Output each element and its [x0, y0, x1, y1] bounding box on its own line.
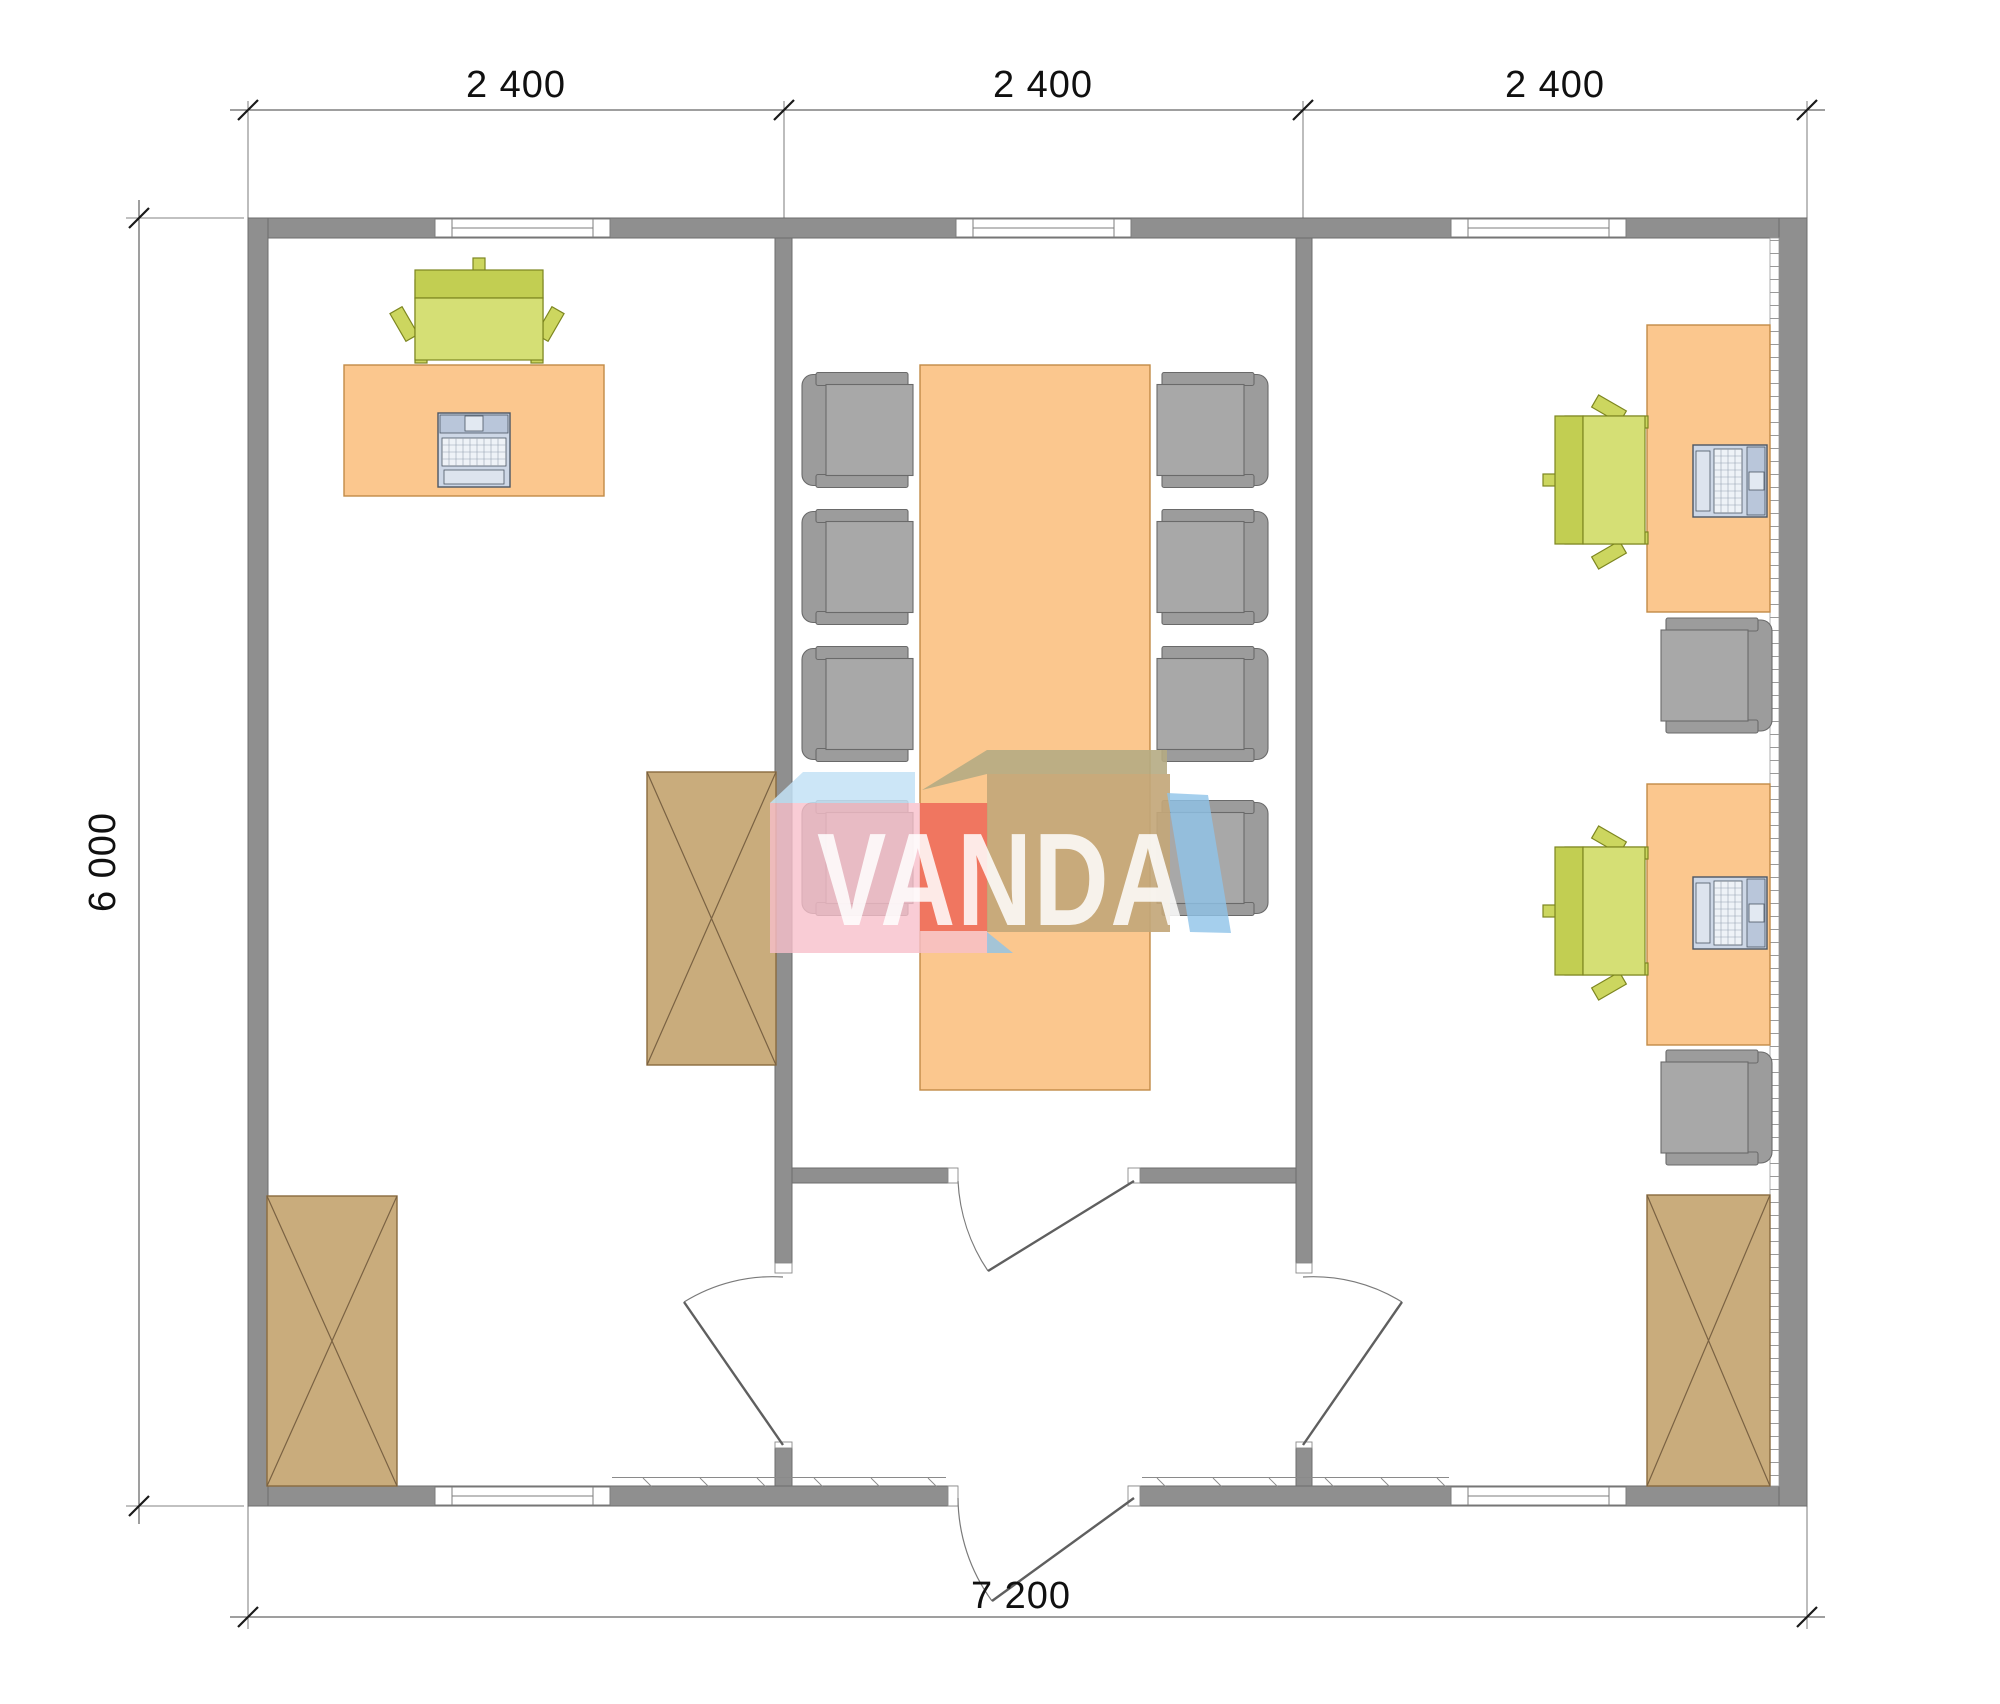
laptop-office-left [438, 413, 510, 487]
laptop-right-bottom [1693, 877, 1767, 949]
conference-chair-right-2 [1157, 510, 1268, 625]
task-chair-right-top [1543, 395, 1648, 569]
dim-label-bay-2: 2 400 [993, 64, 1093, 106]
window-top-right [1451, 219, 1626, 237]
vanda-watermark: VANDA [770, 750, 1231, 953]
visitor-chair-right-2 [1661, 1050, 1772, 1165]
partition-left [775, 238, 792, 1263]
visitor-chair-right-1 [1661, 618, 1772, 733]
wall-ladder-strip [1770, 238, 1779, 1486]
window-top-middle [956, 219, 1131, 237]
conference-chair-left-1 [802, 373, 913, 488]
dimension-top: 2 400 2 400 2 400 [230, 64, 1825, 218]
lobby-wall-right-segment [1140, 1168, 1296, 1183]
wall-right [1779, 218, 1807, 1506]
task-chair-right-bottom [1543, 826, 1648, 1000]
conference-chair-right-3 [1157, 647, 1268, 762]
window-top-left [435, 219, 610, 237]
conference-chair-left-3 [802, 647, 913, 762]
office-right [1543, 325, 1772, 1486]
dimension-bottom: 7 200 [230, 1506, 1825, 1629]
vanda-watermark-text: VANDA [817, 806, 1187, 953]
dim-label-width: 7 200 [971, 1575, 1071, 1617]
door-office-left [684, 1277, 783, 1445]
floor-plan: 2 400 2 400 2 400 6 000 7 200 VANDA [0, 0, 2000, 1704]
partition-right [1296, 238, 1312, 1263]
door-jambs [775, 1168, 1312, 1448]
partition-left-stub [775, 1448, 792, 1486]
door-meeting-room [958, 1181, 1134, 1271]
door-office-right [1303, 1277, 1402, 1445]
floor-plan-svg: 2 400 2 400 2 400 6 000 7 200 VANDA [0, 0, 2000, 1704]
laptop-right-top [1693, 445, 1767, 517]
dim-label-depth: 6 000 [82, 812, 124, 912]
partition-right-stub [1296, 1448, 1312, 1486]
entrance-opening [948, 1485, 1140, 1507]
dimension-left: 6 000 [82, 200, 244, 1524]
conference-table [920, 365, 1150, 1090]
window-bottom-right [1451, 1487, 1626, 1505]
cabinet-bottom-right [1647, 1195, 1770, 1486]
wardrobe-office-left [647, 772, 776, 1065]
dim-label-bay-1: 2 400 [466, 64, 566, 106]
conference-chair-right-1 [1157, 373, 1268, 488]
task-chair-office-left [390, 258, 564, 363]
dim-label-bay-3: 2 400 [1505, 64, 1605, 106]
wall-left [248, 218, 268, 1506]
meeting-room [802, 365, 1268, 1090]
window-bottom-left [435, 1487, 610, 1505]
office-left [267, 258, 776, 1486]
lobby-wall-left-segment [792, 1168, 948, 1183]
conference-chair-left-2 [802, 510, 913, 625]
cabinet-bottom-left [267, 1196, 397, 1486]
